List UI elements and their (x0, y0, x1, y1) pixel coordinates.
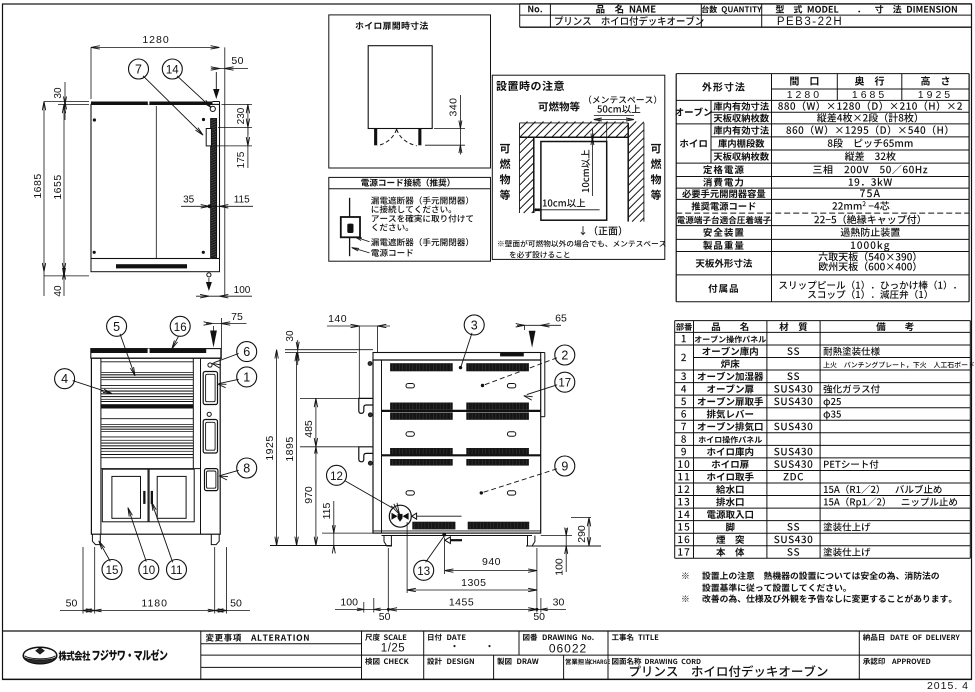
svg-text:12: 12 (330, 471, 343, 483)
svg-text:1280: 1280 (142, 34, 169, 46)
svg-text:5: 5 (113, 320, 120, 334)
svg-text:50: 50 (533, 611, 545, 623)
svg-text:4: 4 (61, 372, 68, 386)
svg-text:140: 140 (328, 313, 347, 325)
svg-text:7: 7 (135, 63, 142, 77)
svg-text:1/25: 1/25 (381, 643, 405, 655)
svg-text:9: 9 (561, 460, 568, 474)
svg-text:1925: 1925 (264, 435, 276, 460)
svg-text:1180: 1180 (141, 598, 168, 610)
svg-text:115: 115 (234, 194, 250, 205)
svg-text:2: 2 (561, 349, 568, 363)
svg-text:2015. 4: 2015. 4 (927, 680, 969, 692)
svg-text:485: 485 (303, 420, 315, 438)
svg-text:230: 230 (236, 107, 247, 124)
svg-text:8: 8 (243, 462, 250, 476)
svg-text:1685: 1685 (32, 173, 44, 198)
svg-text:35: 35 (183, 194, 195, 205)
svg-text:50: 50 (231, 55, 244, 67)
svg-text:75: 75 (231, 311, 243, 323)
svg-text:50: 50 (230, 598, 242, 610)
svg-text:PEB3-22H: PEB3-22H (777, 16, 843, 28)
svg-text:30: 30 (53, 87, 64, 99)
svg-text:1685: 1685 (852, 89, 887, 101)
svg-text:30: 30 (285, 330, 296, 342)
svg-text:50: 50 (379, 611, 391, 623)
svg-text:3: 3 (471, 318, 478, 332)
svg-text:6: 6 (243, 345, 250, 359)
svg-text:40: 40 (53, 285, 64, 297)
svg-text:1305: 1305 (461, 577, 486, 589)
svg-text:50: 50 (66, 598, 78, 610)
svg-text:1455: 1455 (449, 596, 474, 608)
svg-text:100: 100 (234, 285, 251, 296)
svg-text:970: 970 (303, 486, 315, 504)
svg-text:175: 175 (236, 151, 247, 168)
svg-text:115: 115 (321, 502, 333, 519)
svg-text:16: 16 (174, 322, 187, 334)
svg-text:340: 340 (448, 97, 460, 116)
svg-text:10: 10 (142, 565, 155, 577)
svg-text:13: 13 (417, 566, 430, 578)
svg-text:1895: 1895 (284, 436, 296, 461)
svg-text:100: 100 (554, 558, 566, 576)
svg-text:1: 1 (243, 370, 250, 384)
svg-text:100: 100 (340, 596, 358, 608)
svg-text:1280: 1280 (787, 89, 822, 101)
svg-text:290: 290 (576, 525, 588, 543)
svg-text:1925: 1925 (918, 89, 953, 101)
svg-text:17: 17 (558, 378, 571, 390)
svg-text:65: 65 (555, 313, 567, 325)
svg-text:940: 940 (482, 556, 501, 568)
svg-text:11: 11 (171, 565, 183, 577)
svg-text:06022: 06022 (549, 642, 587, 656)
svg-text:14: 14 (166, 65, 179, 77)
svg-text:1655: 1655 (52, 174, 64, 199)
svg-text:15: 15 (106, 565, 119, 577)
svg-text:30: 30 (553, 596, 565, 608)
